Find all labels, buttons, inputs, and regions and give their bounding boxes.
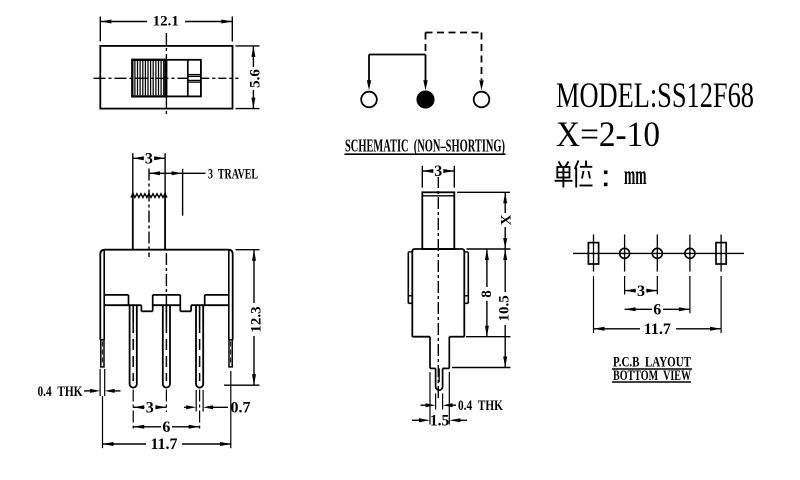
svg-text:12.1: 12.1 (153, 14, 179, 30)
svg-text:1.5: 1.5 (430, 412, 450, 429)
svg-text:3: 3 (434, 163, 442, 180)
svg-text:X: X (498, 214, 514, 225)
svg-text:3: 3 (145, 151, 153, 168)
svg-text:11.7: 11.7 (150, 436, 177, 453)
svg-text:0.7: 0.7 (231, 400, 251, 417)
svg-text:5.6: 5.6 (247, 69, 263, 88)
svg-text:6: 6 (653, 302, 661, 319)
svg-text:MODEL:SS12F68: MODEL:SS12F68 (556, 75, 754, 115)
svg-text:X=2-10: X=2-10 (556, 114, 660, 154)
svg-text:11.7: 11.7 (644, 321, 671, 338)
svg-text:10.5: 10.5 (497, 295, 513, 321)
svg-text:6: 6 (162, 419, 170, 436)
svg-text:mm: mm (624, 160, 647, 190)
svg-text:3: 3 (146, 400, 154, 417)
svg-text:3 TRAVEL: 3 TRAVEL (208, 166, 258, 182)
svg-text:0.4 THK: 0.4 THK (458, 398, 504, 414)
svg-text:0.4 THK: 0.4 THK (38, 384, 84, 400)
svg-text:8: 8 (479, 290, 495, 298)
svg-text:3: 3 (637, 283, 645, 300)
svg-text:12.3: 12.3 (248, 306, 264, 332)
